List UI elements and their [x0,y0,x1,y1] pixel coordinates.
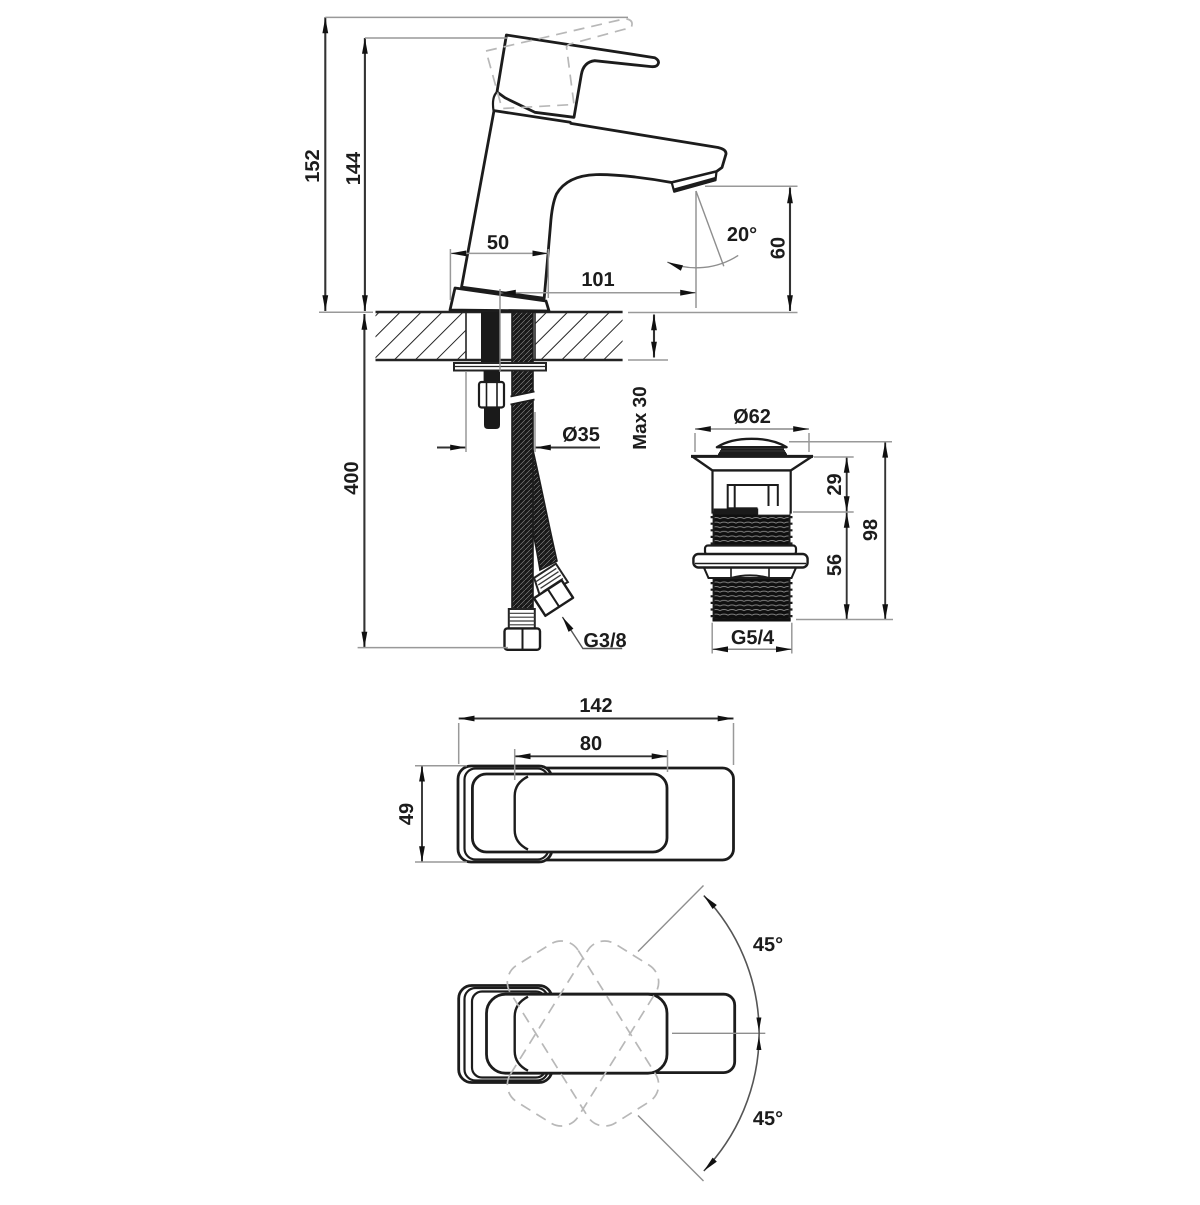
svg-text:152: 152 [302,149,324,182]
svg-text:400: 400 [341,461,363,494]
svg-text:Max 30: Max 30 [630,386,651,449]
svg-text:56: 56 [824,554,846,576]
svg-text:80: 80 [580,733,602,755]
svg-text:Ø35: Ø35 [562,424,600,446]
svg-text:29: 29 [824,473,846,495]
svg-text:144: 144 [343,151,365,185]
svg-text:G5/4: G5/4 [731,627,775,649]
svg-text:Ø62: Ø62 [733,406,771,428]
svg-text:101: 101 [581,269,614,291]
svg-text:142: 142 [579,695,612,717]
svg-text:98: 98 [860,519,882,541]
svg-text:G3/8: G3/8 [583,630,626,652]
svg-text:60: 60 [768,237,790,259]
svg-text:50: 50 [487,232,509,254]
svg-text:20°: 20° [727,224,757,246]
svg-text:49: 49 [396,803,418,825]
svg-text:45°: 45° [753,1108,783,1130]
svg-text:45°: 45° [753,934,783,956]
